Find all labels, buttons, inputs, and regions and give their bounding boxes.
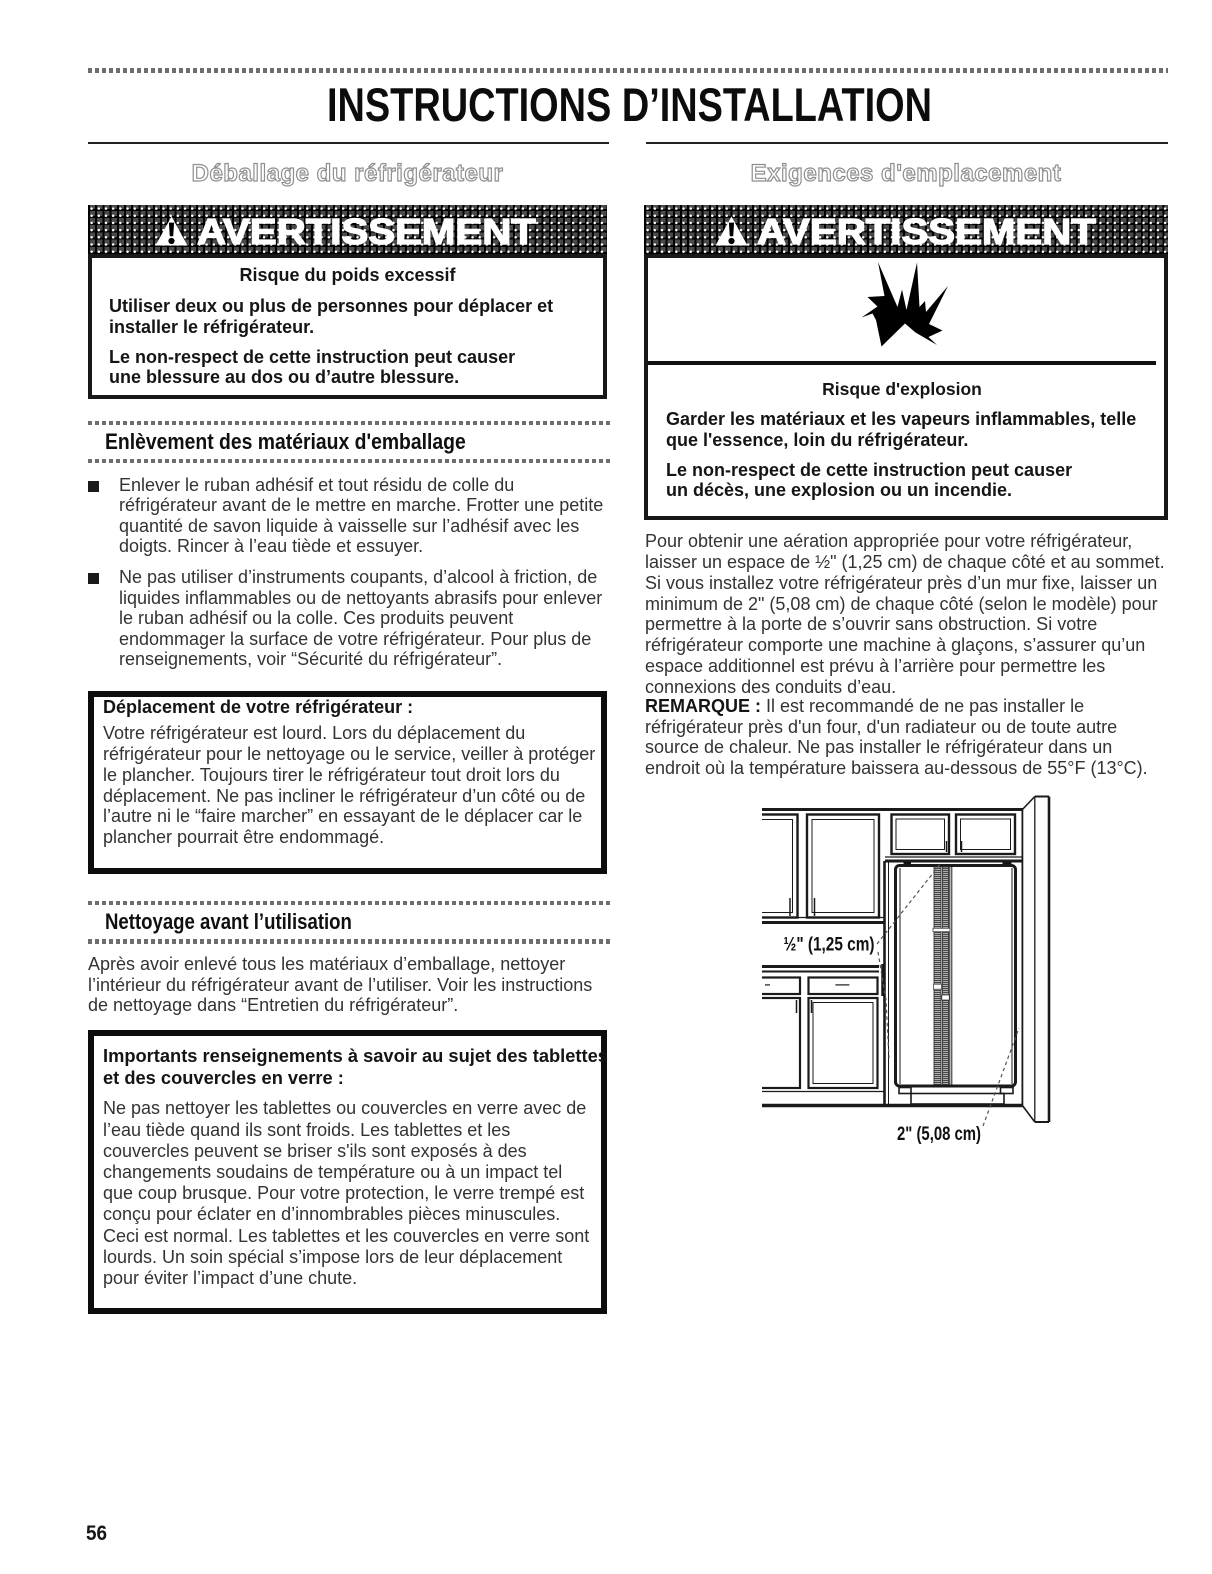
svg-text:½" (1,25 cm): ½" (1,25 cm) bbox=[784, 935, 875, 956]
svg-text:2" (5,08 cm): 2" (5,08 cm) bbox=[897, 1124, 981, 1145]
